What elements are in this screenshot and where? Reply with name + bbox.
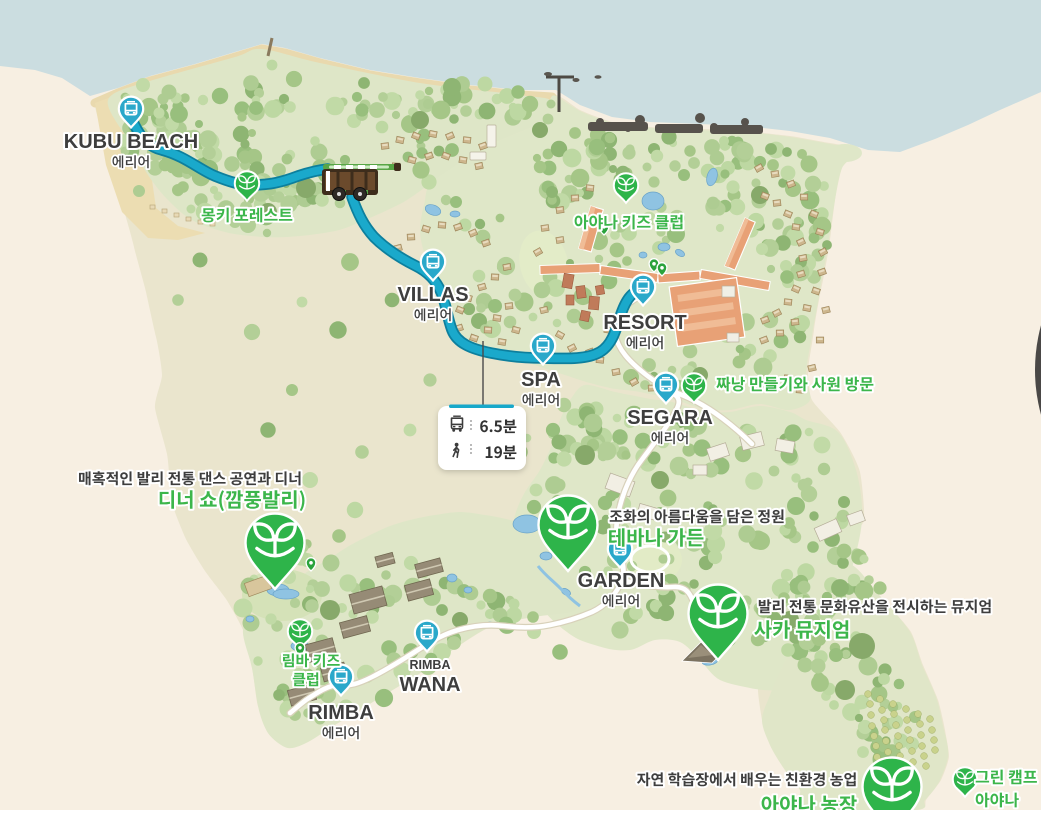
svg-text:RIMBA: RIMBA: [410, 658, 451, 672]
svg-text:GARDEN: GARDEN: [578, 570, 665, 592]
svg-text:KUBU BEACH: KUBU BEACH: [64, 131, 198, 153]
svg-text:RESORT: RESORT: [603, 312, 686, 334]
svg-text:RIMBA: RIMBA: [308, 702, 374, 724]
svg-text:WANA: WANA: [399, 674, 460, 696]
svg-text:SPA: SPA: [521, 369, 561, 391]
svg-text:SEGARA: SEGARA: [627, 407, 713, 429]
svg-text:VILLAS: VILLAS: [397, 284, 468, 306]
